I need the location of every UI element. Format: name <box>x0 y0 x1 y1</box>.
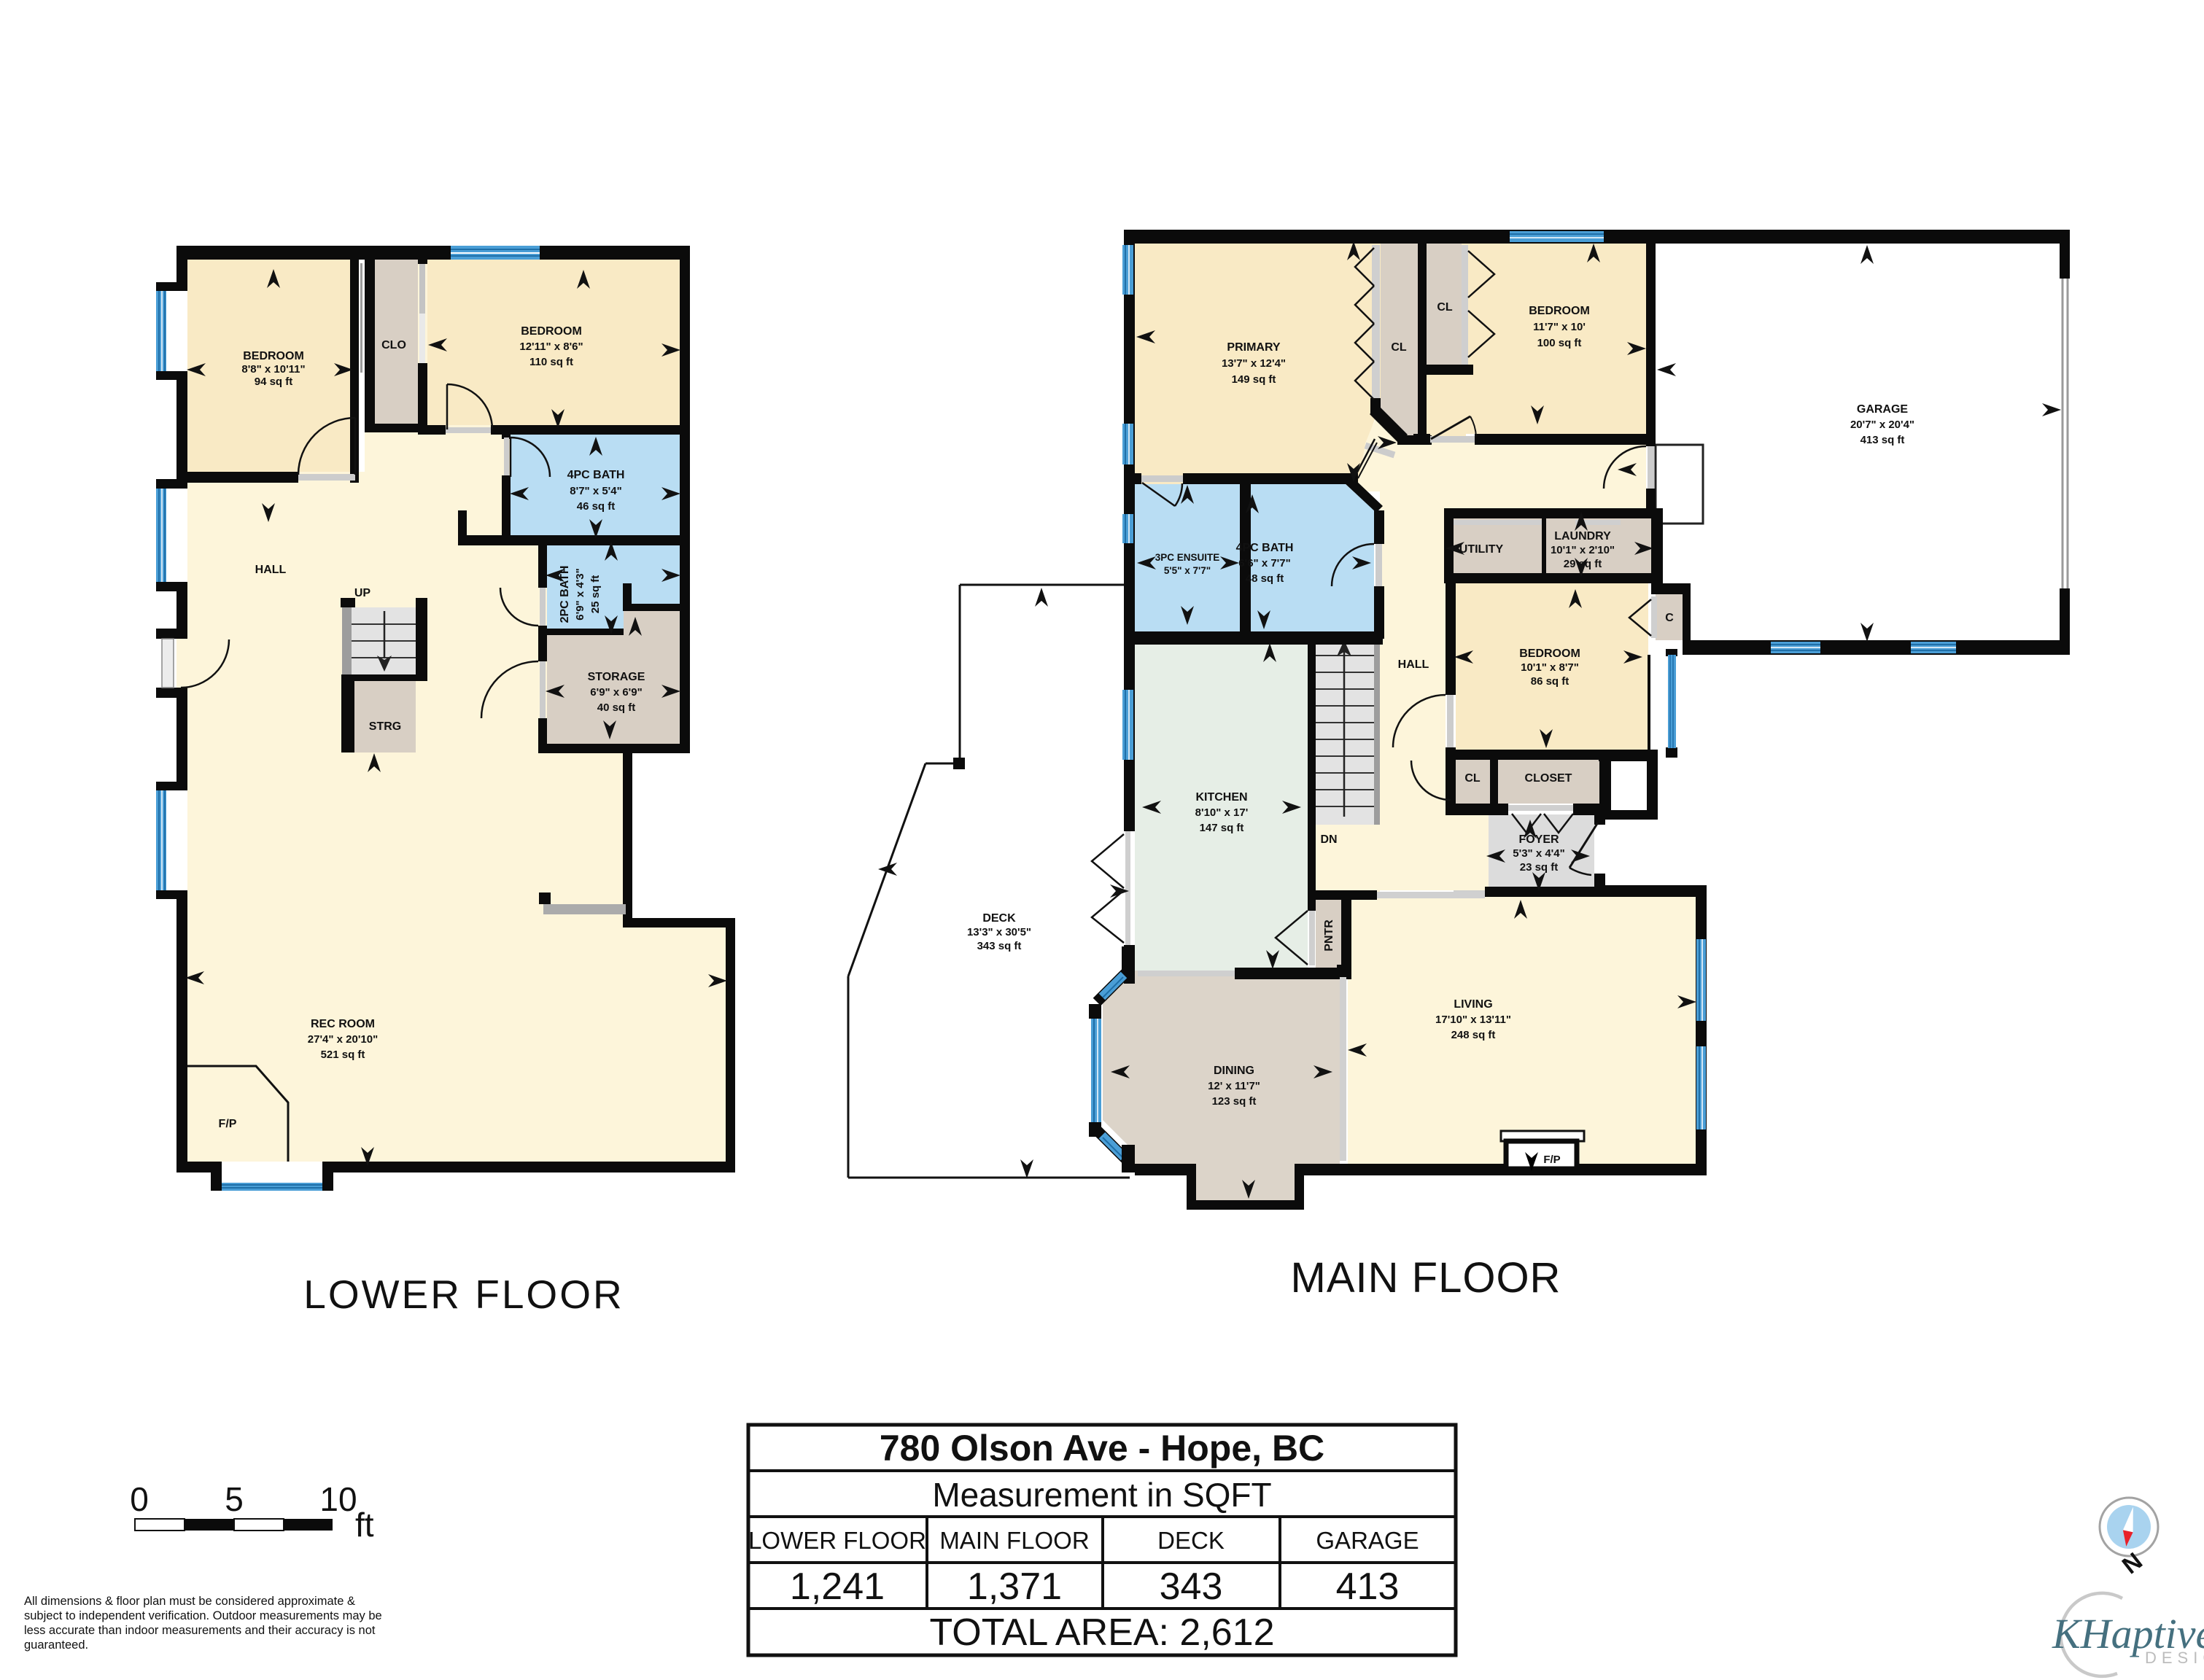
svg-text:Measurement in SQFT: Measurement in SQFT <box>932 1476 1271 1514</box>
svg-text:4PC BATH: 4PC BATH <box>567 469 625 481</box>
svg-text:PRIMARY: PRIMARY <box>1227 341 1281 354</box>
svg-text:13'7" x 12'4": 13'7" x 12'4" <box>1222 357 1286 370</box>
svg-text:100 sq ft: 100 sq ft <box>1537 337 1582 349</box>
svg-text:LAUNDRY: LAUNDRY <box>1554 530 1611 542</box>
svg-text:780 Olson Ave - Hope, BC: 780 Olson Ave - Hope, BC <box>880 1428 1324 1469</box>
svg-text:6'6" x 7'7": 6'6" x 7'7" <box>1238 557 1290 569</box>
svg-text:3PC ENSUITE: 3PC ENSUITE <box>1155 552 1220 563</box>
svg-text:GARAGE: GARAGE <box>1857 403 1909 416</box>
svg-text:4PC BATH: 4PC BATH <box>1236 542 1294 554</box>
svg-text:343 sq ft: 343 sq ft <box>977 940 1022 952</box>
svg-text:MAIN FLOOR: MAIN FLOOR <box>1291 1254 1561 1302</box>
svg-text:248 sq ft: 248 sq ft <box>1451 1029 1496 1041</box>
svg-text:86 sq ft: 86 sq ft <box>1531 675 1569 688</box>
svg-text:413: 413 <box>1336 1566 1400 1608</box>
svg-text:5'5" x 7'7": 5'5" x 7'7" <box>1164 565 1211 576</box>
svg-text:11'7" x 10': 11'7" x 10' <box>1533 321 1586 333</box>
svg-text:C: C <box>1665 612 1674 624</box>
svg-text:1,371: 1,371 <box>967 1566 1062 1608</box>
svg-text:UP: UP <box>354 587 371 599</box>
svg-text:25 sq ft: 25 sq ft <box>589 575 602 614</box>
svg-text:BEDROOM: BEDROOM <box>521 325 582 338</box>
svg-text:ft: ft <box>355 1506 374 1544</box>
svg-text:521 sq ft: 521 sq ft <box>321 1049 365 1061</box>
svg-text:HALL: HALL <box>1398 658 1429 671</box>
svg-text:123 sq ft: 123 sq ft <box>1212 1095 1257 1108</box>
svg-text:LOWER FLOOR: LOWER FLOOR <box>303 1272 624 1317</box>
svg-text:20'7" x 20'4": 20'7" x 20'4" <box>1850 419 1914 431</box>
svg-text:KITCHEN: KITCHEN <box>1195 791 1247 804</box>
svg-text:BEDROOM: BEDROOM <box>1529 305 1590 317</box>
svg-text:MAIN FLOOR: MAIN FLOOR <box>939 1527 1089 1554</box>
svg-text:UTILITY: UTILITY <box>1459 543 1504 556</box>
svg-text:147 sq ft: 147 sq ft <box>1200 822 1244 834</box>
svg-text:GARAGE: GARAGE <box>1316 1527 1419 1554</box>
svg-text:STRG: STRG <box>369 720 401 733</box>
svg-text:DECK: DECK <box>1157 1527 1225 1554</box>
svg-text:12' x 11'7": 12' x 11'7" <box>1208 1080 1260 1092</box>
svg-text:23 sq ft: 23 sq ft <box>1520 861 1559 874</box>
svg-text:F/P: F/P <box>219 1118 237 1130</box>
svg-text:0: 0 <box>130 1480 149 1518</box>
svg-text:8'7" x 5'4": 8'7" x 5'4" <box>570 485 621 497</box>
svg-text:LOWER FLOOR: LOWER FLOOR <box>748 1527 926 1554</box>
svg-text:PNTR: PNTR <box>1323 919 1335 952</box>
svg-text:46 sq ft: 46 sq ft <box>577 500 616 513</box>
svg-text:10'1" x 8'7": 10'1" x 8'7" <box>1521 661 1579 674</box>
svg-text:DESIGN: DESIGN <box>2145 1649 2204 1667</box>
svg-text:94 sq ft: 94 sq ft <box>255 376 293 388</box>
svg-text:less accurate than indoor meas: less accurate than indoor measurements a… <box>24 1624 376 1637</box>
svg-text:13'3" x 30'5": 13'3" x 30'5" <box>967 926 1031 938</box>
svg-text:TOTAL AREA: 2,612: TOTAL AREA: 2,612 <box>929 1611 1274 1654</box>
svg-text:CL: CL <box>1437 301 1453 314</box>
svg-text:5'3" x 4'4": 5'3" x 4'4" <box>1513 847 1564 860</box>
svg-text:subject to independent verific: subject to independent verification. Out… <box>24 1609 382 1622</box>
svg-text:CL: CL <box>1391 341 1407 354</box>
svg-text:DECK: DECK <box>982 912 1016 925</box>
svg-text:CL: CL <box>1464 772 1481 785</box>
svg-text:40 sq ft: 40 sq ft <box>597 701 636 714</box>
svg-text:110 sq ft: 110 sq ft <box>529 356 573 368</box>
svg-text:HALL: HALL <box>255 564 287 576</box>
svg-text:27'4" x 20'10": 27'4" x 20'10" <box>308 1033 378 1046</box>
svg-text:STORAGE: STORAGE <box>588 671 645 683</box>
svg-text:CLO: CLO <box>381 339 406 351</box>
svg-text:10'1" x 2'10": 10'1" x 2'10" <box>1551 544 1615 556</box>
svg-text:1,241: 1,241 <box>790 1566 885 1608</box>
svg-text:343: 343 <box>1160 1566 1223 1608</box>
svg-text:12'11" x 8'6": 12'11" x 8'6" <box>519 341 583 353</box>
svg-text:2PC BATH: 2PC BATH <box>559 566 571 623</box>
svg-text:LIVING: LIVING <box>1454 998 1492 1011</box>
svg-text:REC ROOM: REC ROOM <box>311 1018 375 1030</box>
svg-text:413 sq ft: 413 sq ft <box>1860 434 1905 446</box>
svg-text:CLOSET: CLOSET <box>1525 772 1572 785</box>
svg-text:BEDROOM: BEDROOM <box>243 350 304 362</box>
svg-text:DINING: DINING <box>1214 1065 1254 1077</box>
svg-text:8'10" x 17': 8'10" x 17' <box>1195 806 1249 819</box>
svg-text:10: 10 <box>319 1480 357 1518</box>
svg-text:DN: DN <box>1320 833 1337 846</box>
svg-text:6'9" x 4'3": 6'9" x 4'3" <box>574 568 586 620</box>
svg-text:8'8" x 10'11": 8'8" x 10'11" <box>241 363 305 376</box>
svg-text:149 sq ft: 149 sq ft <box>1232 373 1276 386</box>
svg-text:F/P: F/P <box>1543 1154 1560 1166</box>
svg-text:5: 5 <box>225 1480 244 1518</box>
svg-text:BEDROOM: BEDROOM <box>1519 647 1580 660</box>
svg-text:All dimensions & floor plan mu: All dimensions & floor plan must be cons… <box>24 1595 355 1608</box>
svg-text:17'10" x 13'11": 17'10" x 13'11" <box>1435 1014 1511 1026</box>
svg-text:48 sq ft: 48 sq ft <box>1246 572 1284 585</box>
svg-text:6'9" x 6'9": 6'9" x 6'9" <box>590 686 642 699</box>
svg-text:guaranteed.: guaranteed. <box>24 1638 88 1652</box>
